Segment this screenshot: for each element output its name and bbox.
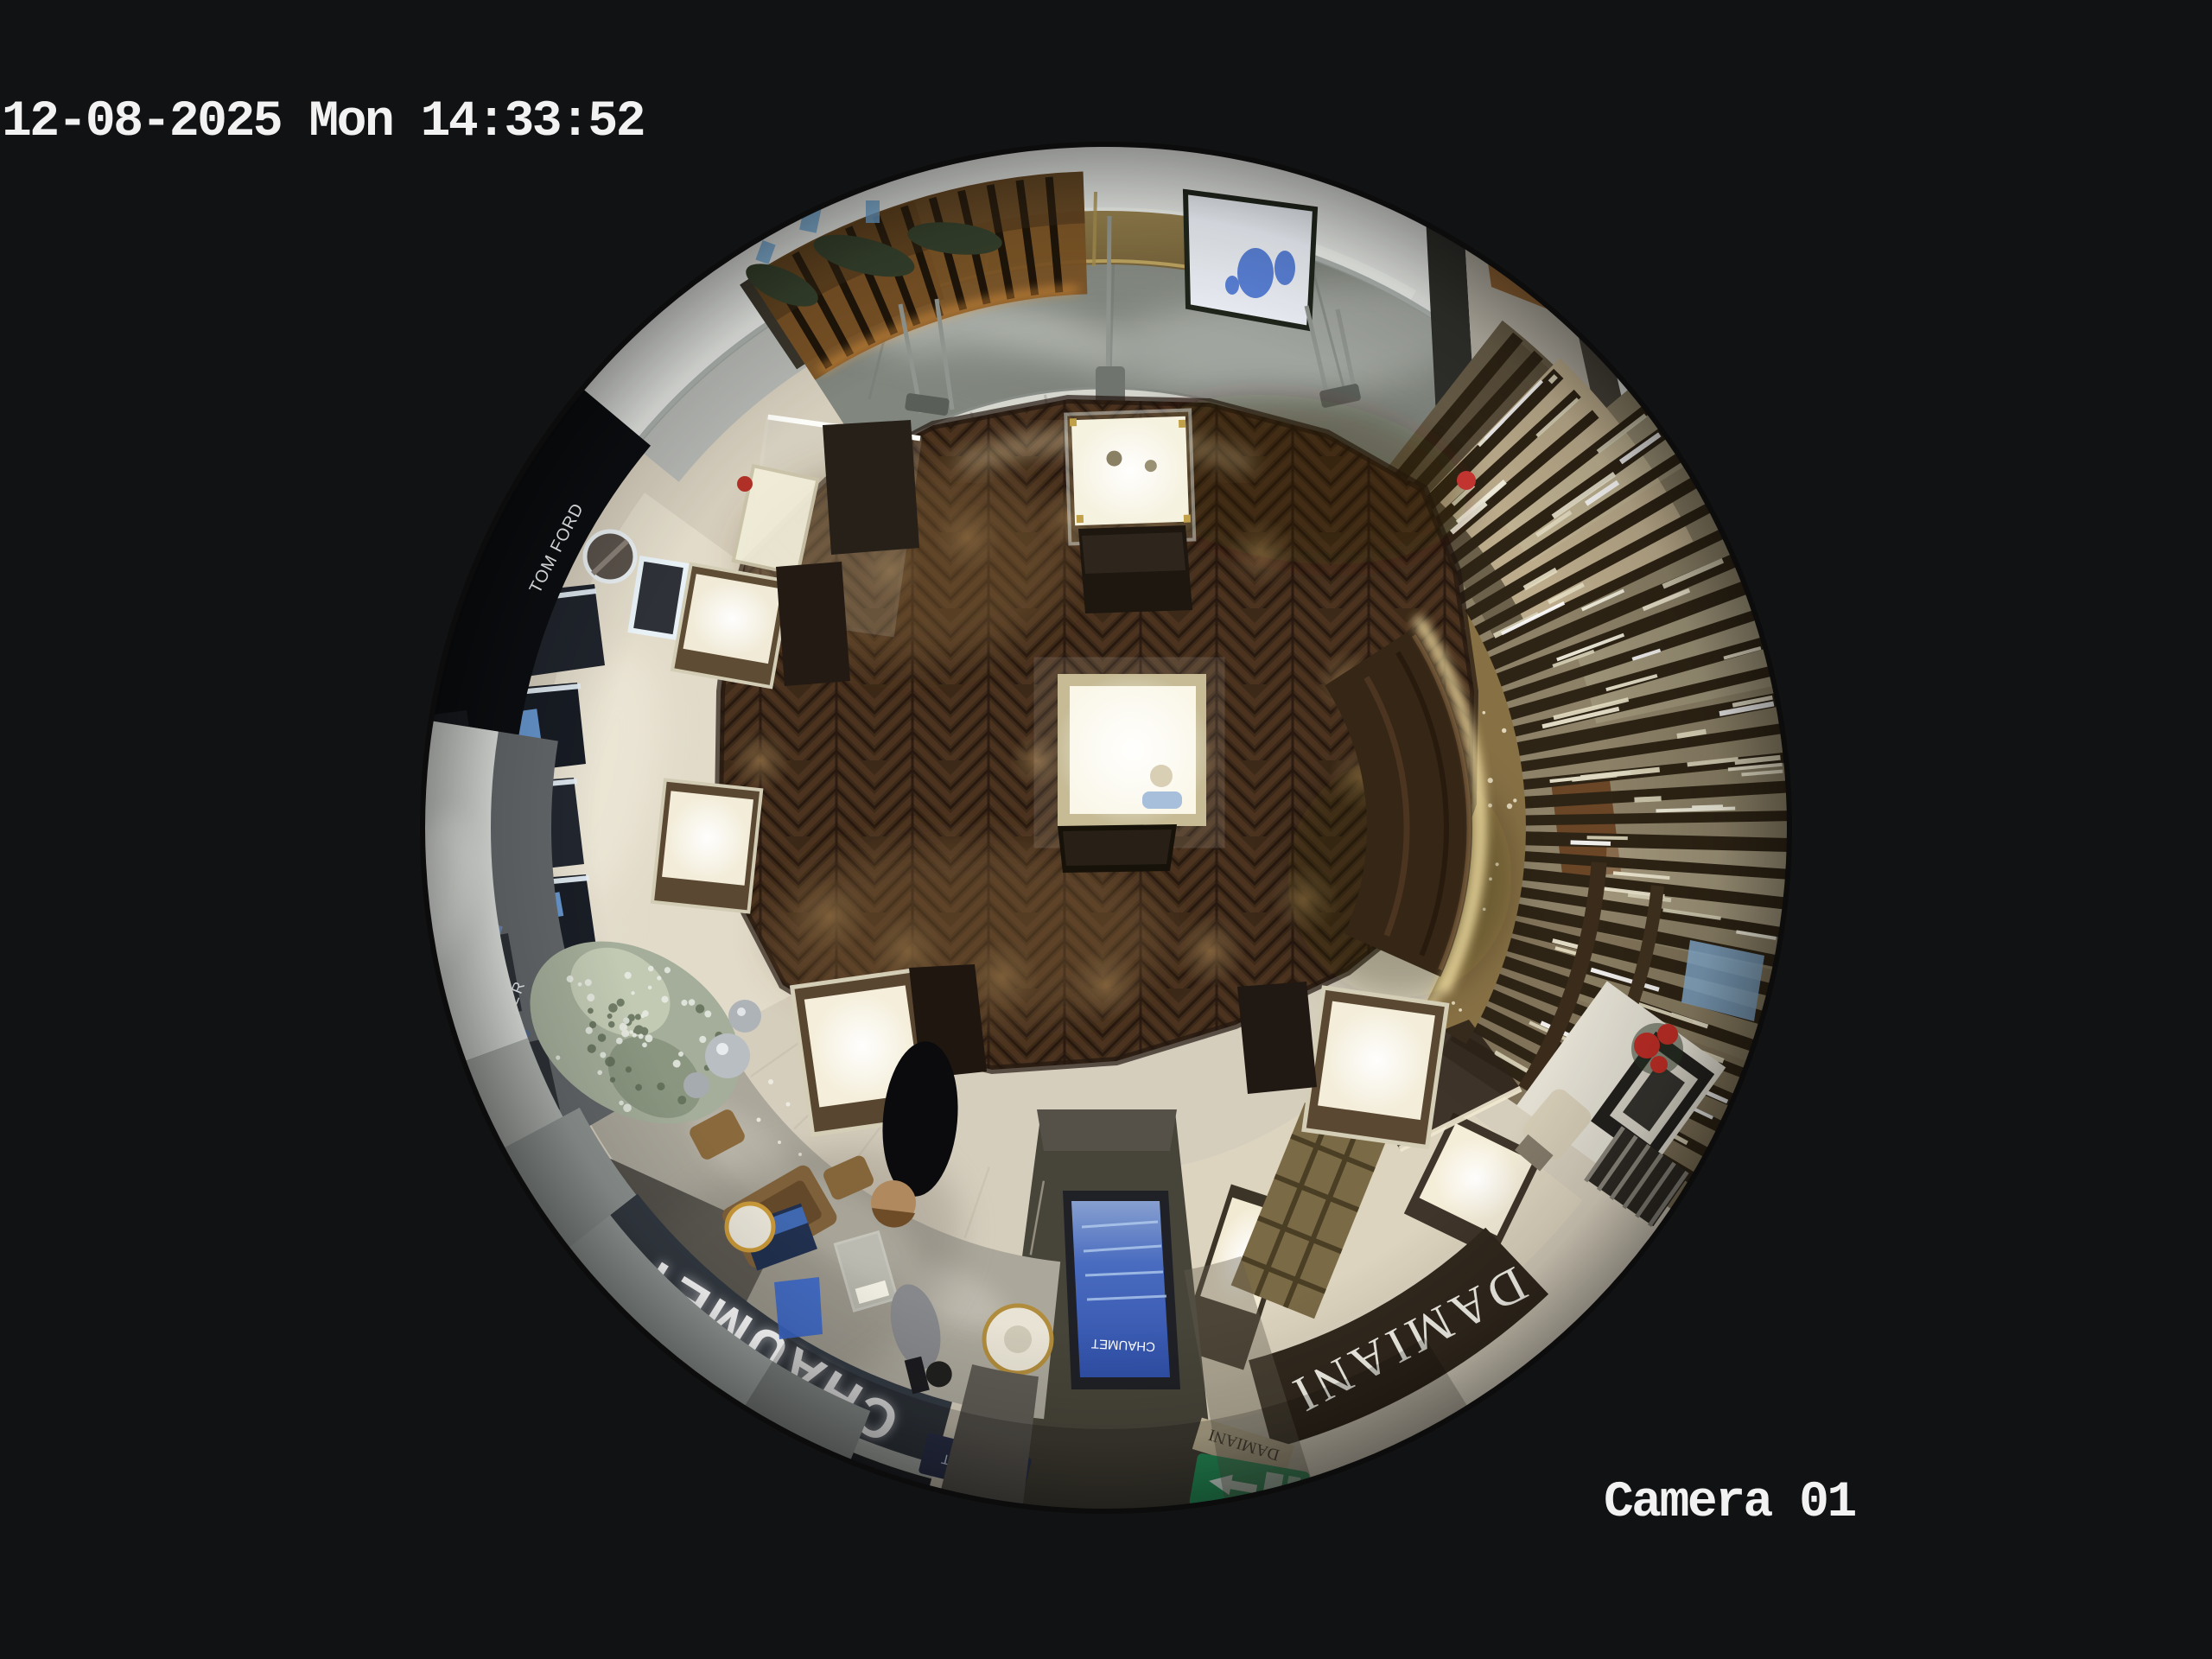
svg-text:12-08-2025 Mon 14:33:52: 12-08-2025 Mon 14:33:52 xyxy=(2,94,644,150)
svg-text:Camera 01: Camera 01 xyxy=(1604,1475,1855,1531)
